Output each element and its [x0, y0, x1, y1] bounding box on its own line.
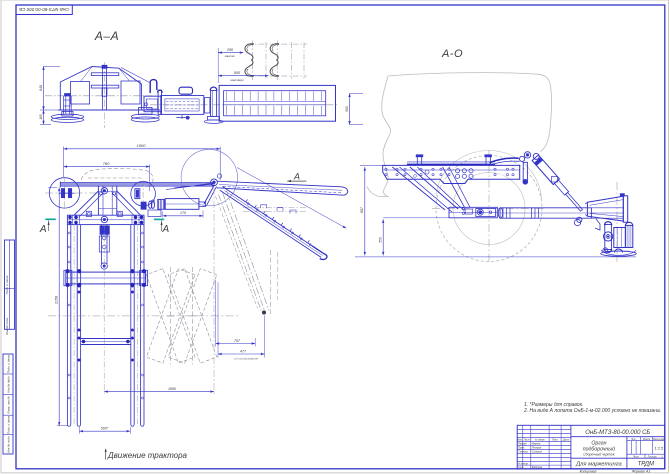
- svg-text:Подп. и дата: Подп. и дата: [6, 415, 10, 433]
- svg-text:1890: 1890: [168, 387, 176, 391]
- svg-text:Дата: Дата: [562, 439, 570, 441]
- svg-text:550: 550: [378, 237, 382, 243]
- svg-text:Листов: Листов: [647, 455, 657, 458]
- svg-text:Движение трактора: Движение трактора: [107, 451, 188, 460]
- svg-text:807: 807: [360, 206, 364, 213]
- svg-text:Лист: Лист: [523, 439, 530, 441]
- svg-text:Подп. и дата: Подп. и дата: [6, 355, 10, 373]
- svg-text:Подп. и дата: Подп. и дата: [5, 275, 9, 294]
- svg-text:ОнБ-МТЗ-80-00.000 СБ: ОнБ-МТЗ-80-00.000 СБ: [585, 430, 650, 436]
- svg-text:ТРДМ: ТРДМ: [638, 462, 654, 468]
- svg-text:Масса: Масса: [643, 438, 651, 441]
- svg-text:767: 767: [234, 339, 241, 343]
- svg-text:1500: 1500: [137, 143, 147, 148]
- svg-text:подборочный: подборочный: [583, 445, 615, 452]
- svg-text:№ докум.: № докум.: [535, 438, 545, 441]
- svg-text:Фёдоров: Фёдоров: [532, 466, 543, 469]
- svg-text:640: 640: [39, 85, 43, 91]
- svg-text:1:2,5: 1:2,5: [654, 445, 664, 450]
- svg-text:Лит.: Лит.: [630, 438, 637, 441]
- svg-text:Сидоров: Сидоров: [532, 451, 543, 454]
- svg-text:Подп.: Подп.: [552, 438, 558, 441]
- svg-text:Пров.: Пров.: [518, 447, 525, 450]
- svg-text:А-О: А-О: [441, 48, 463, 60]
- svg-text:477: 477: [240, 349, 247, 353]
- svg-text:ОнБ-МТЗ-80-00.000 СБ: ОнБ-МТЗ-80-00.000 СБ: [19, 7, 69, 12]
- svg-text:А: А: [161, 224, 169, 235]
- svg-text:760: 760: [103, 161, 110, 166]
- svg-text:2150: 2150: [54, 296, 58, 305]
- svg-text:500*: 500*: [101, 427, 109, 431]
- svg-text:Инв.№ дубл.: Инв.№ дубл.: [6, 376, 10, 393]
- svg-text:Изм.: Изм.: [517, 439, 522, 441]
- svg-text:с/х использования: с/х использования: [234, 357, 258, 361]
- svg-text:Лист: Лист: [632, 455, 639, 458]
- svg-text:Инв.№ подл.: Инв.№ подл.: [5, 317, 9, 335]
- svg-text:Иванов: Иванов: [532, 443, 541, 446]
- svg-text:Утв.: Утв.: [518, 466, 524, 469]
- svg-text:А–А: А–А: [94, 29, 119, 43]
- svg-text:Инв.№ подл.: Инв.№ подл.: [6, 436, 10, 453]
- svg-text:А: А: [293, 171, 300, 181]
- svg-text:Взам. инв.№: Взам. инв.№: [6, 395, 10, 413]
- svg-text:170: 170: [180, 211, 186, 215]
- svg-text:Сборочный чертеж: Сборочный чертеж: [583, 453, 615, 457]
- svg-text:Т.контр.: Т.контр.: [518, 451, 528, 454]
- svg-text:250: 250: [226, 48, 234, 52]
- svg-text:Для маркетинга: Для маркетинга: [575, 462, 622, 468]
- svg-text:Разраб.: Разраб.: [518, 443, 527, 446]
- svg-text:Петров: Петров: [532, 447, 542, 450]
- svg-text:2. На виде А лопата ОнБ-1-м-02: 2. На виде А лопата ОнБ-1-м-02.000 услов…: [523, 408, 661, 414]
- svg-text:500: 500: [234, 71, 241, 75]
- svg-text:максим.: максим.: [225, 54, 236, 58]
- svg-text:А: А: [39, 224, 47, 235]
- svg-text:Формат А1: Формат А1: [632, 469, 651, 473]
- svg-text:максимум: максимум: [231, 78, 244, 82]
- svg-text:560: 560: [345, 106, 349, 112]
- svg-text:160: 160: [39, 114, 43, 120]
- svg-text:Копировал: Копировал: [580, 469, 597, 473]
- svg-text:Н.контр.: Н.контр.: [518, 462, 529, 465]
- svg-text:Масштаб: Масштаб: [653, 438, 665, 441]
